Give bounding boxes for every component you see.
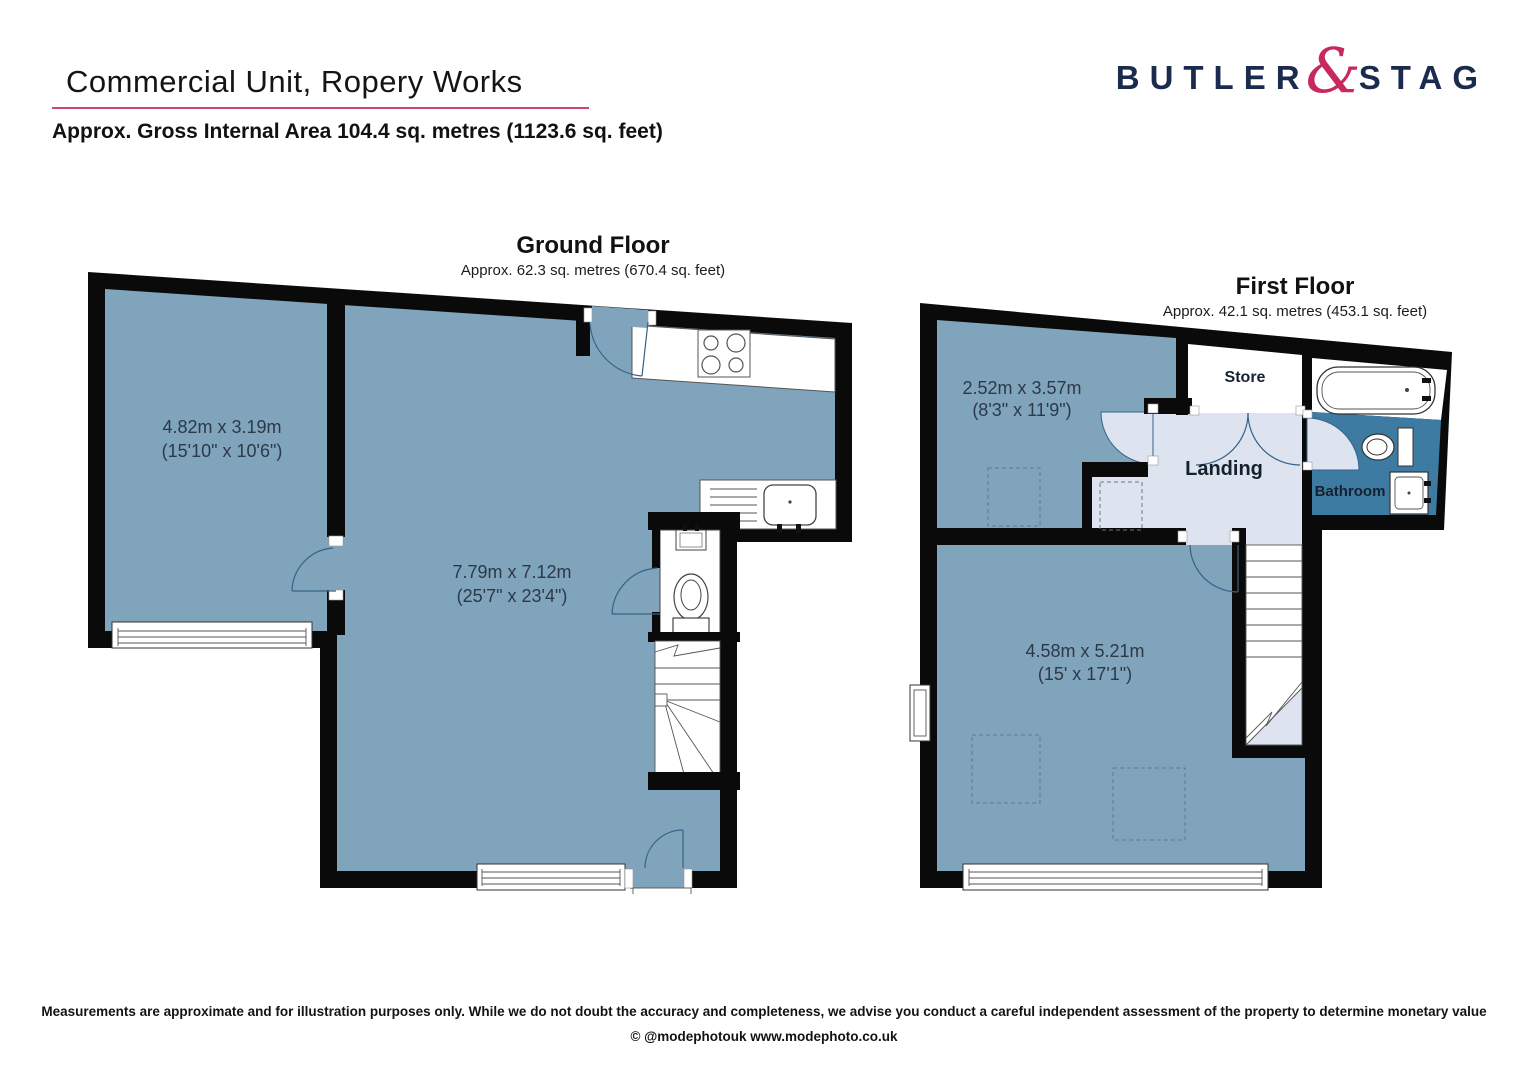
ff-left-window xyxy=(910,685,930,741)
gf-room1-dim-imperial: (15'10" x 10'6") xyxy=(162,441,283,461)
brand-word-butler: BUTLER xyxy=(1116,59,1310,97)
ff-room1-dim-metric: 2.52m x 3.57m xyxy=(962,378,1081,398)
butler-stag-logo: BUTLER & STAG xyxy=(1068,46,1488,110)
gf-room2-dim-imperial: (25'7" x 23'4") xyxy=(457,586,568,606)
store-label: Store xyxy=(1225,369,1266,386)
landing-label: Landing xyxy=(1185,458,1263,480)
gf-room1-dim-metric: 4.82m x 3.19m xyxy=(162,417,281,437)
ff-stairs xyxy=(1246,545,1302,745)
disclaimer-text: Measurements are approximate and for ill… xyxy=(0,1004,1528,1019)
ampersand-icon: & xyxy=(1306,40,1361,102)
title-underline xyxy=(52,107,589,109)
first-floor-plan: 2.52m x 3.57m (8'3" x 11'9") Store Landi… xyxy=(898,293,1468,900)
floorplan-page: Commercial Unit, Ropery Works Approx. Gr… xyxy=(0,0,1528,1080)
photo-credit: © @modephotouk www.modephoto.co.uk xyxy=(0,1029,1528,1044)
wc-toilet-icon xyxy=(673,574,709,634)
hob-icon xyxy=(698,330,750,377)
ground-floor-name: Ground Floor xyxy=(413,233,773,259)
page-title: Commercial Unit, Ropery Works xyxy=(66,64,523,100)
bath-icon xyxy=(1317,367,1435,414)
ff-room2-dim-metric: 4.58m x 5.21m xyxy=(1025,641,1144,661)
bathroom-label: Bathroom xyxy=(1315,483,1386,500)
ground-floor-plan: 4.82m x 3.19m (15'10" x 10'6") 7.79m x 7… xyxy=(80,262,870,894)
brand-word-stag: STAG xyxy=(1359,59,1488,97)
ff-room1-dim-imperial: (8'3" x 11'9") xyxy=(972,400,1071,420)
gf-bottom-window xyxy=(477,864,625,890)
ff-room2-dim-imperial: (15' x 17'1") xyxy=(1038,664,1132,684)
gf-room2-dim-metric: 7.79m x 7.12m xyxy=(452,562,571,582)
gf-left-window xyxy=(112,622,312,648)
basin-icon xyxy=(1390,472,1431,514)
ff-bottom-window xyxy=(963,864,1268,890)
gross-area-subtitle: Approx. Gross Internal Area 104.4 sq. me… xyxy=(52,120,663,144)
